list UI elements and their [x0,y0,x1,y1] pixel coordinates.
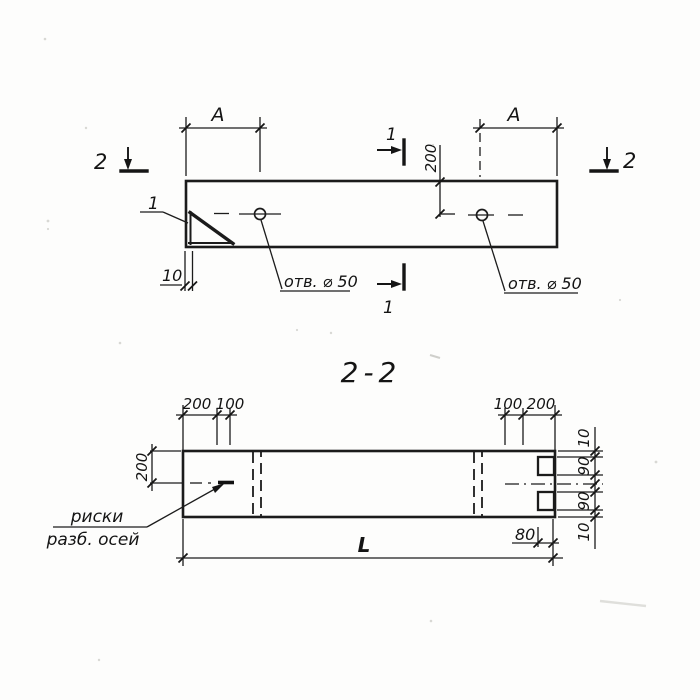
notch-top [538,457,554,475]
corner-triangle-detail [189,212,233,244]
dim-10-top-text: 10 [575,428,593,447]
section-mark-1-bottom: 1 [377,265,404,318]
section-dim-80-text: 80 [515,525,535,544]
section-view: 2-2 200 [46,356,603,566]
dim-90-top-text: 90 [575,456,593,475]
dim-200-text: 200 [183,395,212,413]
dim-10-bottom-text: 10 [575,522,593,541]
detail-leader-line [163,212,188,223]
down-arrow-icon [603,159,611,170]
plan-dim-10-text: 10 [162,266,182,285]
right-arrow-icon [391,280,402,288]
section-beam-outline [183,451,555,517]
section-mark-1-top-label: 1 [386,125,397,145]
plan-dim-10: 10 [160,251,197,291]
leader-line [261,220,282,289]
dim-200-text: 200 [527,395,556,413]
joint-lines [253,452,482,516]
section-dim-top-right: 100 200 [494,395,562,450]
axis-note-line2: разб. осей [46,530,140,550]
section-dim-right-chain: 10 90 90 10 [557,427,603,549]
plan-view: 1 10 A A [94,104,636,318]
section-dim-length-text: L [358,533,371,557]
section-dim-top-left: 200 100 [176,395,244,450]
section-mark-2-right-label: 2 [623,149,636,173]
section-mark-2-left-label: 2 [94,150,107,174]
section-mark-1-top: 1 [377,125,404,164]
hole-callout-right: отв. ⌀ 50 [483,221,582,293]
scan-speckles [44,38,658,662]
section-dim-80: 80 [512,525,559,548]
hole-left [214,209,281,220]
plan-dim-a-right-text: A [506,104,521,126]
section-title: 2-2 [341,356,402,389]
plan-dim-a-left-text: A [210,104,225,126]
detail-mark-1: 1 [140,194,188,223]
section-mark-2-right: 2 [591,147,636,173]
section-mark-2-left: 2 [94,147,147,174]
right-arrow-icon [391,146,402,154]
plan-dim-a-left: A [179,104,267,176]
down-arrow-icon [124,159,132,170]
drawing-sheet: 1 10 A A [0,0,700,700]
section-dim-left-200-text: 200 [133,453,151,482]
hole-callout-left-text: отв. ⌀ 50 [284,272,358,291]
detail-mark-1-label: 1 [148,194,159,214]
hole-right [441,210,523,221]
leader-line [483,221,505,291]
dim-90-bottom-text: 90 [575,491,593,510]
dim-100-text: 100 [216,395,245,413]
plan-dim-a-right: A [473,104,564,177]
hole-callout-left: отв. ⌀ 50 [261,220,358,291]
leader-arrow-icon [212,483,225,493]
leader-line [147,485,222,527]
axis-lines [190,483,603,485]
section-mark-1-bottom-label: 1 [383,298,394,318]
axis-note-line1: риски [70,507,124,527]
section-dim-length: L [176,519,563,566]
notch-bottom [538,492,554,510]
dim-100-text: 100 [494,395,523,413]
section-dim-left-200: 200 [133,444,182,491]
plan-dim-200-text: 200 [422,144,440,173]
hole-callout-right-text: отв. ⌀ 50 [508,274,582,293]
technical-drawing: 1 10 A A [0,0,700,700]
